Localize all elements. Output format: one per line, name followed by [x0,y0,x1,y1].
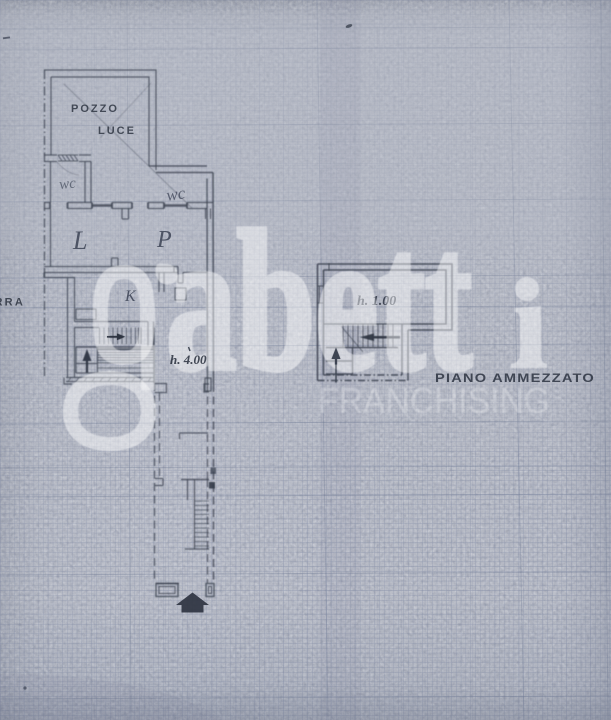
svg-text:POZZO: POZZO [71,103,119,115]
svg-text:ERRA: ERRA [0,297,25,309]
svg-text:FRANCHISING: FRANCHISING [318,380,550,421]
svg-text:L: L [72,226,87,255]
svg-text:K: K [124,288,137,305]
svg-text:abett: abett [166,191,472,412]
svg-text:wc: wc [58,175,77,193]
svg-text:LUCE: LUCE [98,125,136,137]
svg-text:h. 4.00: h. 4.00 [170,352,207,367]
